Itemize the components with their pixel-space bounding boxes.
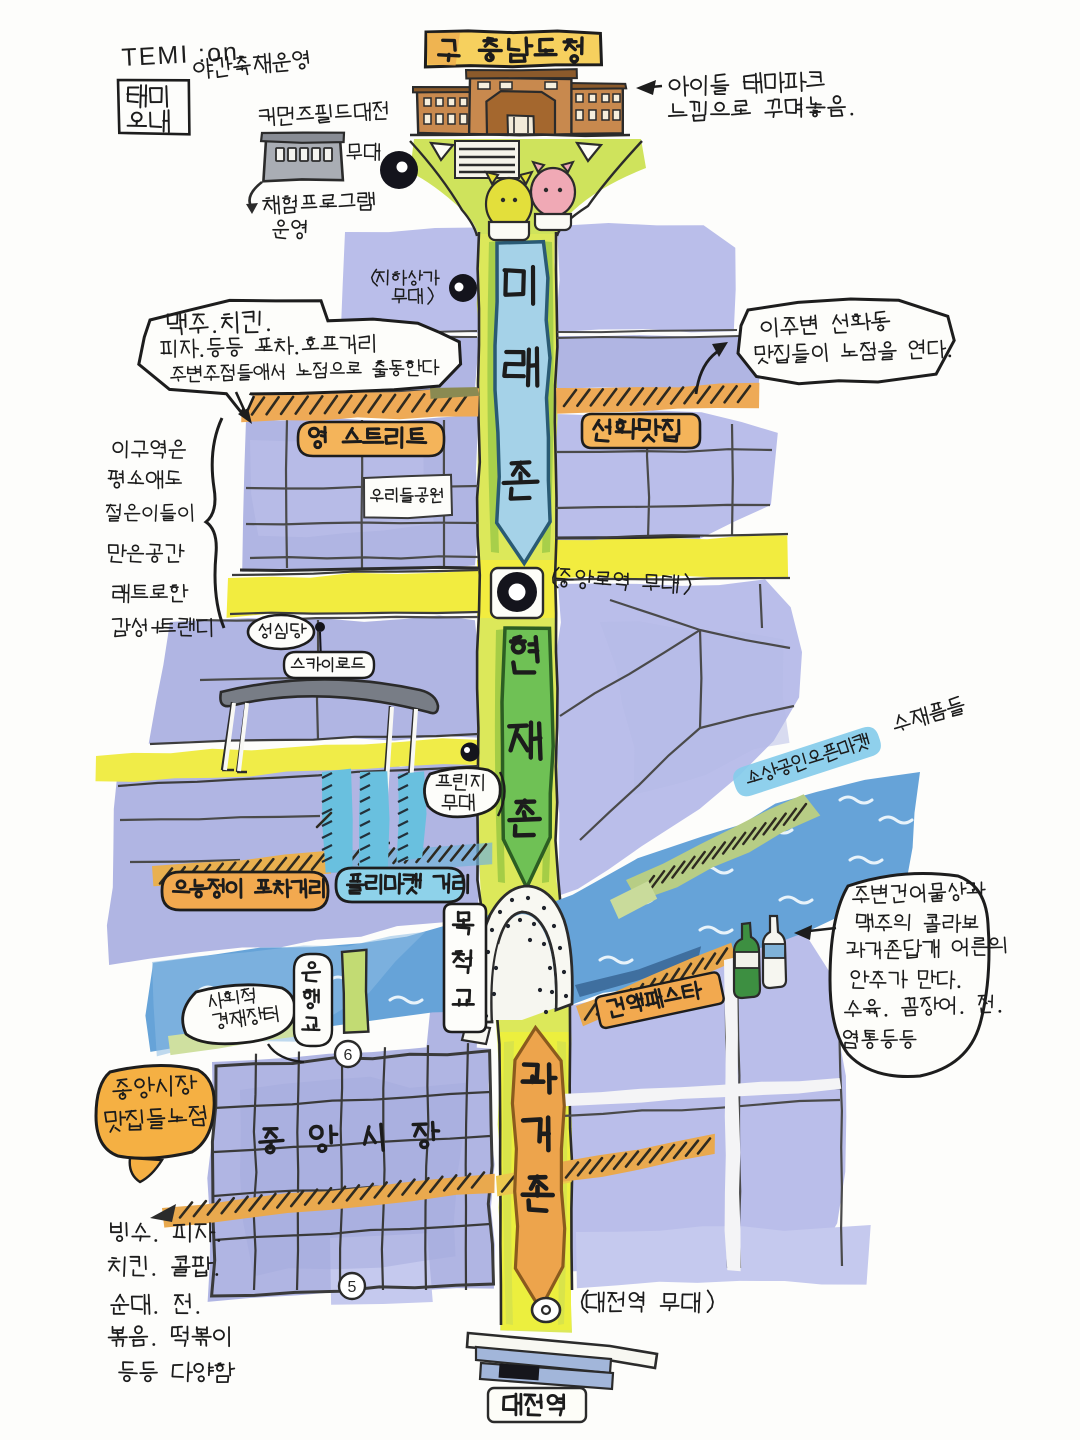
svg-text:6: 6 [344,1047,353,1064]
svg-text:5: 5 [348,1279,357,1296]
